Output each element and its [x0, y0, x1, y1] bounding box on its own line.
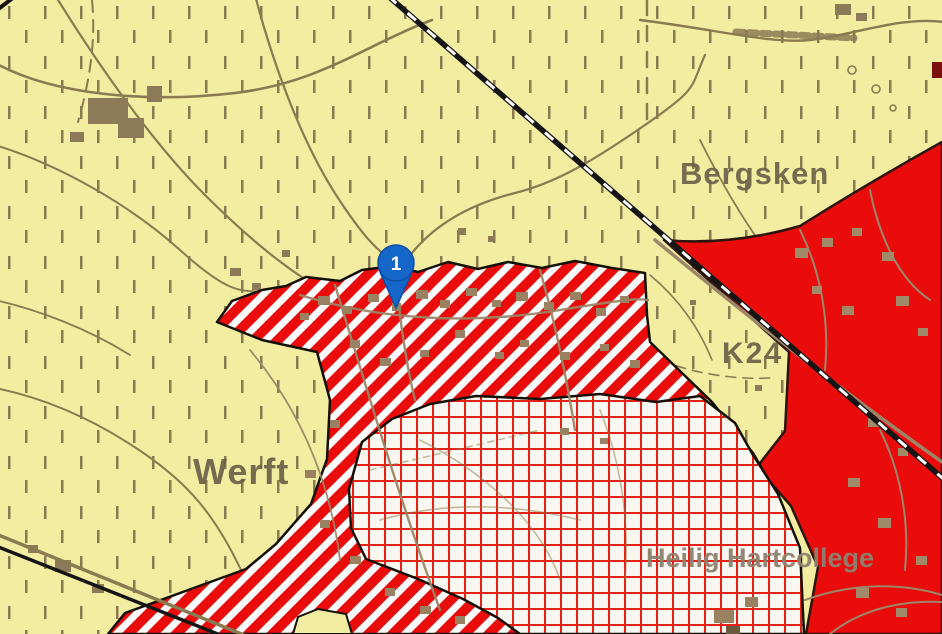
label-werft: Werft	[193, 451, 289, 492]
map-viewport: Bergsken Werft K24 Heilig Hartcollege 1	[0, 0, 942, 634]
label-heilig-hartcollege: Heilig Hartcollege	[646, 543, 874, 573]
label-bergsken: Bergsken	[680, 156, 829, 191]
label-k24: K24	[722, 337, 783, 370]
map-canvas[interactable]: Bergsken Werft K24 Heilig Hartcollege 1	[0, 0, 942, 634]
marker-number: 1	[391, 254, 402, 275]
